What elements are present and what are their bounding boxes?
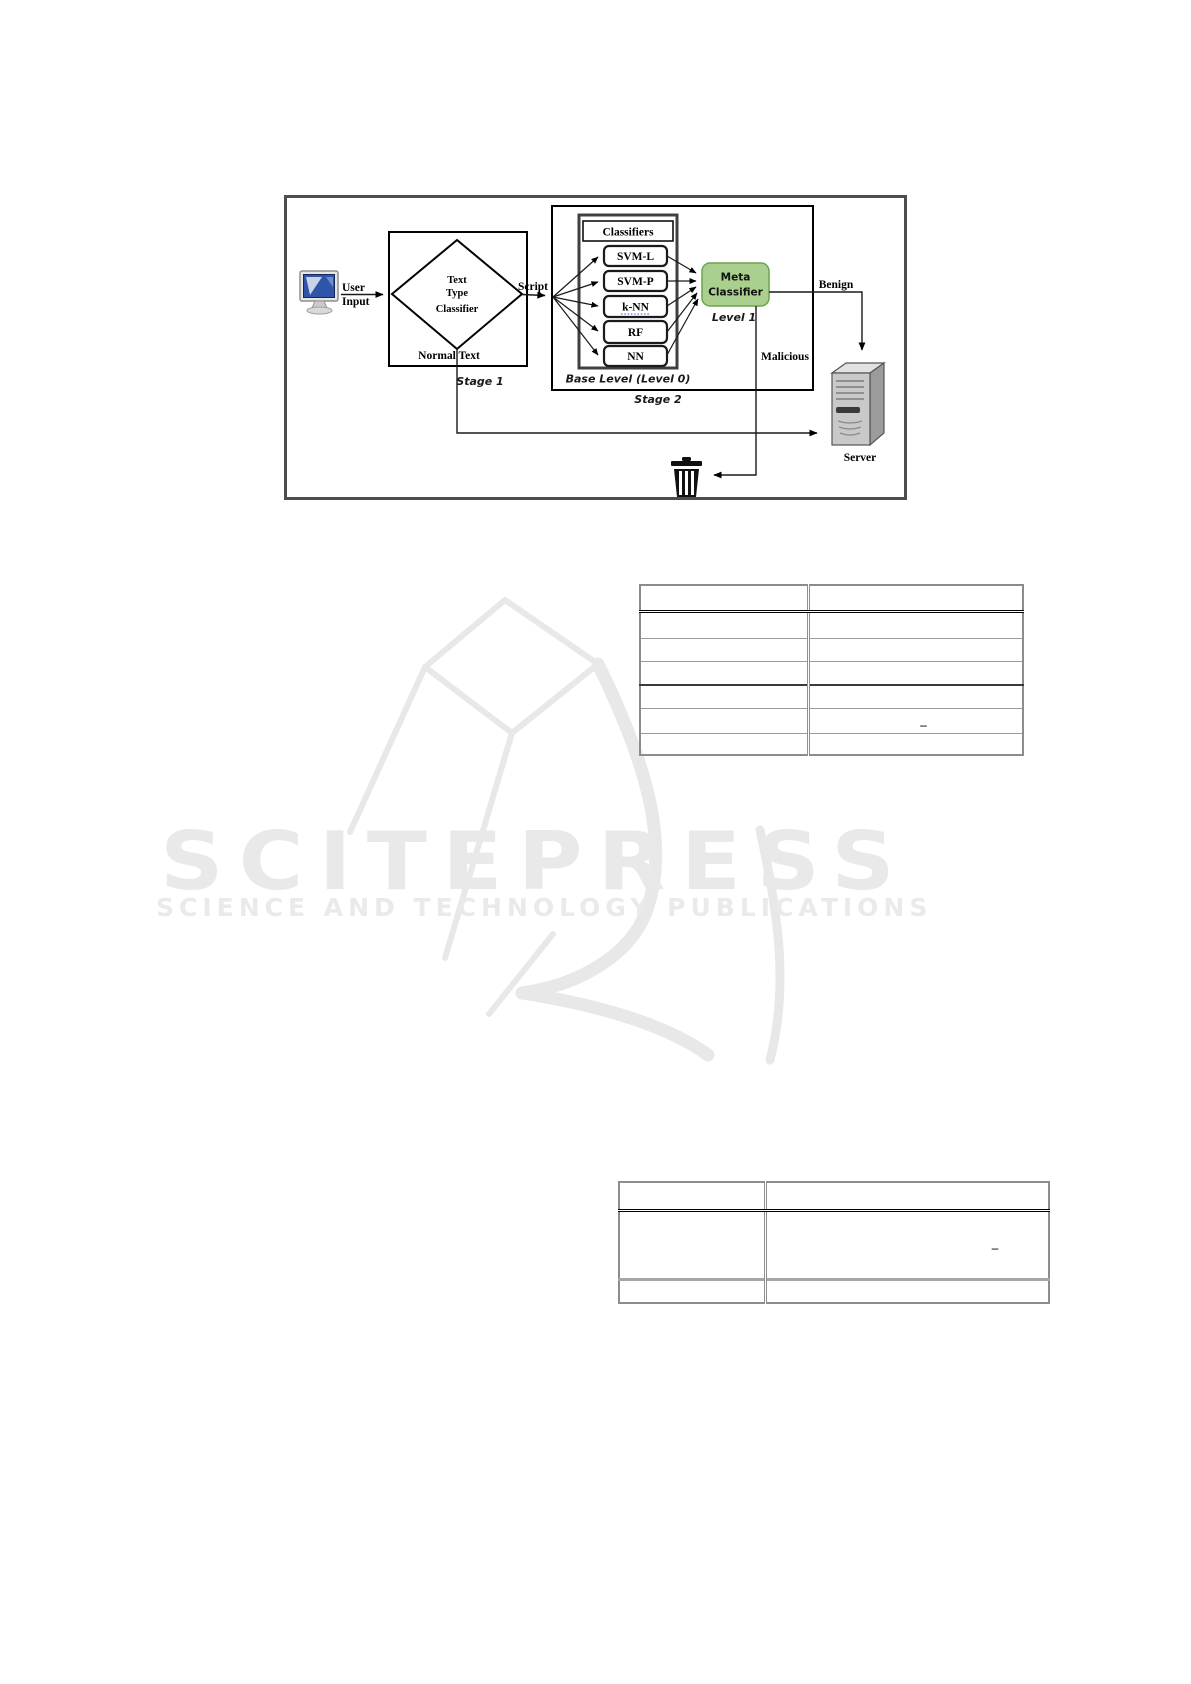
normal-text-label: Normal Text bbox=[418, 350, 480, 362]
table2-cell bbox=[766, 1279, 1050, 1303]
meta-classifier-box bbox=[702, 263, 769, 306]
table2-cell bbox=[619, 1279, 766, 1303]
meta-label-2: Classifier bbox=[708, 287, 763, 299]
base-level-label: Base Level (Level 0) bbox=[566, 373, 691, 386]
table1-cell: – bbox=[809, 708, 1024, 733]
table1-cell bbox=[640, 611, 809, 638]
diamond-label-1: Text bbox=[447, 275, 467, 286]
input-label: Input bbox=[342, 296, 370, 308]
table1-cell bbox=[640, 708, 809, 733]
nn-label: NN bbox=[627, 351, 644, 363]
server-icon bbox=[832, 363, 884, 445]
svm-l-label: SVM-L bbox=[617, 251, 654, 263]
user-label: User bbox=[342, 282, 365, 294]
meta-label-1: Meta bbox=[721, 272, 751, 284]
table2-header-col1 bbox=[619, 1182, 766, 1210]
table1-cell bbox=[640, 733, 809, 755]
table1-header-col2 bbox=[809, 585, 1024, 611]
table2-header-col2 bbox=[766, 1182, 1050, 1210]
table1-cell bbox=[809, 611, 1024, 638]
results-table-1: – bbox=[639, 584, 1024, 756]
benign-label: Benign bbox=[819, 279, 854, 291]
table1-cell bbox=[640, 638, 809, 661]
diamond-label-2: Type bbox=[446, 288, 468, 299]
k-nn-label: k-NN bbox=[622, 302, 650, 314]
table1-header-col1 bbox=[640, 585, 809, 611]
watermark-subtitle: SCIENCE AND TECHNOLOGY PUBLICATIONS bbox=[156, 894, 986, 922]
table1-cell bbox=[809, 661, 1024, 685]
classifiers-header-label: Classifiers bbox=[602, 227, 654, 239]
paper-page: { "figure": { "user_input": {"line1": "U… bbox=[0, 0, 1191, 1684]
rf-label: RF bbox=[628, 327, 643, 339]
table2-cell: – bbox=[766, 1210, 1050, 1279]
malicious-label: Malicious bbox=[761, 351, 809, 363]
table2-cell bbox=[619, 1210, 766, 1279]
stage2-label: Stage 2 bbox=[634, 393, 682, 406]
table1-cell bbox=[809, 733, 1024, 755]
table1-cell bbox=[809, 685, 1024, 708]
results-table-2: – bbox=[618, 1181, 1050, 1304]
level1-label: Level 1 bbox=[712, 311, 756, 324]
diamond-label-3: Classifier bbox=[436, 304, 479, 315]
architecture-diagram: User Input Text Type Classifier Normal T… bbox=[284, 195, 907, 500]
table1-cell bbox=[640, 685, 809, 708]
svm-p-label: SVM-P bbox=[617, 276, 653, 288]
table1-cell bbox=[809, 638, 1024, 661]
server-label: Server bbox=[844, 452, 877, 464]
table1-dash-value: – bbox=[920, 717, 927, 733]
script-label: Script bbox=[518, 281, 548, 293]
stage1-label: Stage 1 bbox=[456, 375, 503, 388]
table1-cell bbox=[640, 661, 809, 685]
watermark-title: SCITEPRESS bbox=[160, 822, 1073, 902]
script-arrow bbox=[522, 295, 545, 296]
table2-dash-value: – bbox=[992, 1240, 999, 1256]
